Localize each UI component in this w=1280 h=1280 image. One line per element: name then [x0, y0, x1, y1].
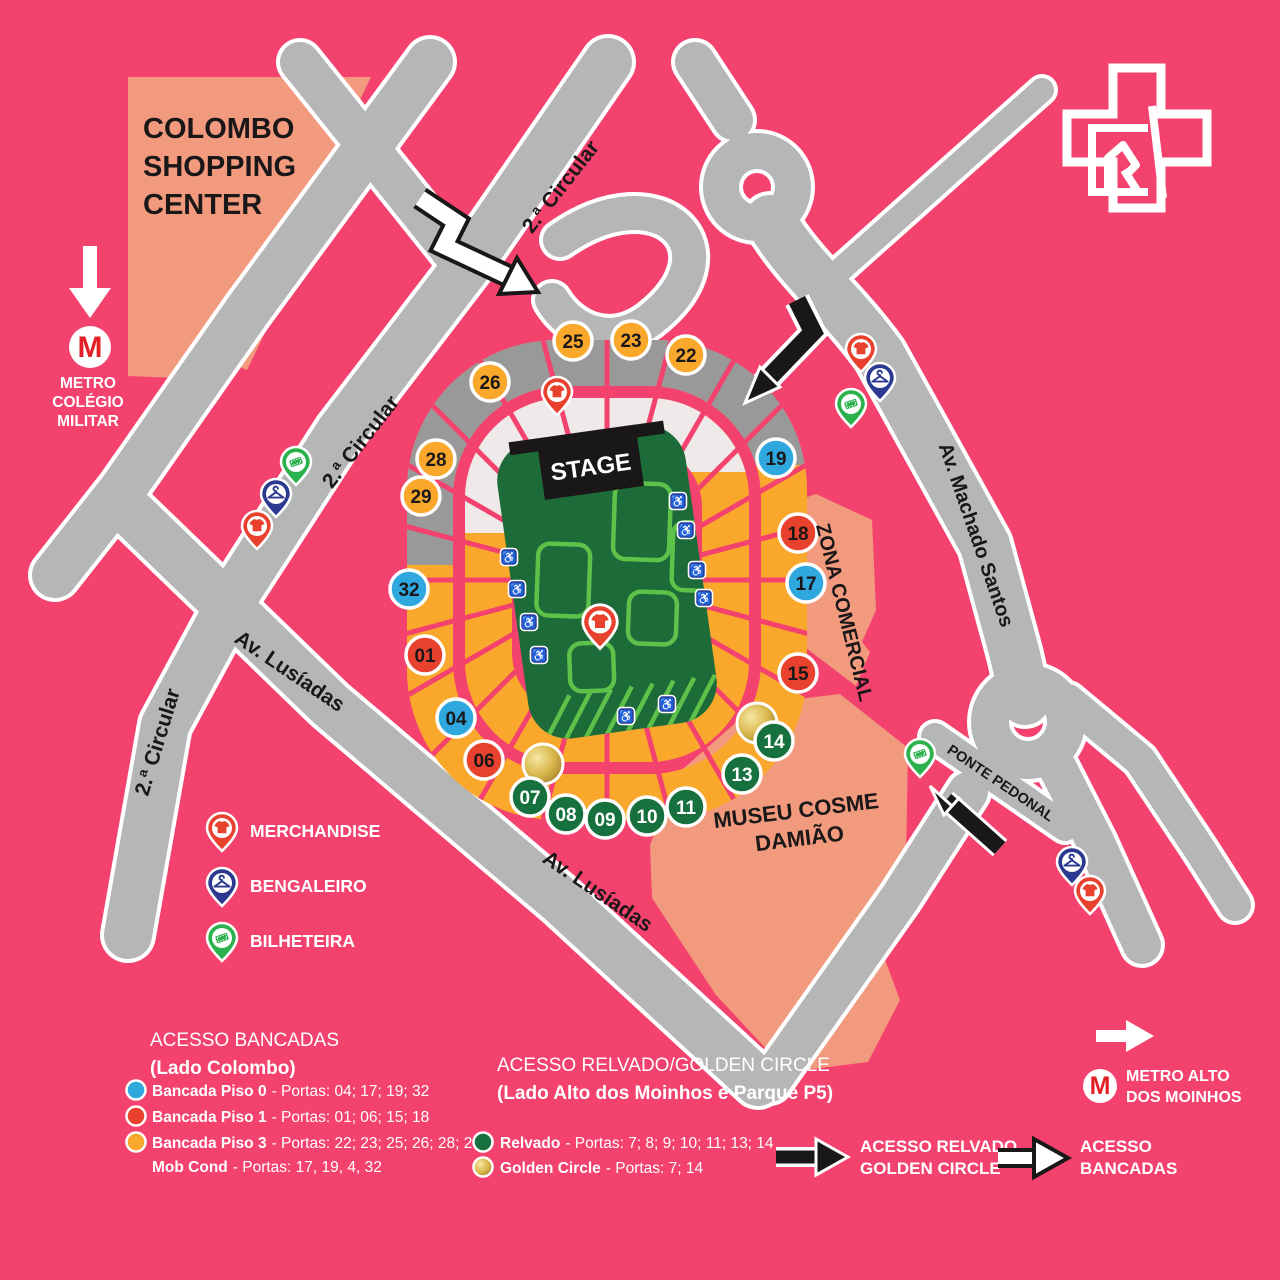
legend-row: Bancada Piso 3- Portas: 22; 23; 25; 26; … — [152, 1135, 481, 1152]
svg-text:DOS MOINHOS: DOS MOINHOS — [1126, 1089, 1242, 1106]
gate-15: 15 — [779, 654, 817, 692]
venue-map: STAGE ♿ ♿ ♿ ♿ ♿ ♿ ♿ ♿ ♿ ♿ 25 23 22 26 28… — [0, 0, 1280, 1280]
gate-11: 11 — [667, 788, 705, 826]
gate-26: 26 — [471, 363, 509, 401]
metro-m: M — [78, 331, 103, 364]
wheelchair-icon: ♿ — [509, 581, 526, 598]
wheelchair-icon: ♿ — [659, 696, 676, 713]
svg-text:♿: ♿ — [510, 583, 525, 597]
svg-text:ACESSO RELVADO: ACESSO RELVADO — [860, 1137, 1017, 1156]
svg-text:♿: ♿ — [619, 710, 634, 724]
svg-text:10: 10 — [636, 807, 657, 828]
wheelchair-icon: ♿ — [696, 590, 713, 607]
svg-text:22: 22 — [675, 346, 696, 367]
gate-22: 22 — [667, 336, 705, 374]
svg-text:29: 29 — [410, 487, 431, 508]
legend-row: Mob Cond- Portas: 17, 19, 4, 32 — [152, 1159, 382, 1176]
svg-text:METRO: METRO — [60, 375, 116, 392]
pin-legend: MERCHANDISE BENGALEIRO BILHETEIRA — [207, 813, 380, 961]
gate-01: 01 — [406, 636, 444, 674]
colombo-label: COLOMBO — [143, 113, 294, 145]
wheelchair-icon: ♿ — [501, 549, 518, 566]
svg-text:15: 15 — [787, 664, 809, 685]
colombo-label: CENTER — [143, 189, 262, 221]
svg-text:04: 04 — [445, 709, 467, 730]
wheelchair-icon: ♿ — [689, 562, 706, 579]
gate-19: 19 — [757, 439, 795, 477]
legend-bilheteira: BILHETEIRA — [250, 931, 355, 951]
svg-text:32: 32 — [398, 580, 419, 601]
gate-13: 13 — [723, 755, 761, 793]
acesso-bancadas-subtitle: (Lado Colombo) — [150, 1058, 296, 1079]
svg-text:GOLDEN CIRCLE: GOLDEN CIRCLE — [860, 1159, 1001, 1178]
gate-25: 25 — [554, 322, 592, 360]
gate-29: 29 — [402, 477, 440, 515]
svg-text:♿: ♿ — [671, 495, 686, 509]
legend-dot — [127, 1107, 146, 1126]
svg-text:18: 18 — [787, 524, 808, 545]
svg-text:26: 26 — [479, 373, 500, 394]
gate-10: 10 — [628, 797, 666, 835]
svg-text:♿: ♿ — [690, 564, 705, 578]
svg-text:ACESSO: ACESSO — [1080, 1137, 1152, 1156]
svg-text:COLÉGIO: COLÉGIO — [52, 394, 123, 411]
svg-text:13: 13 — [731, 765, 752, 786]
legend-row: Bancada Piso 0- Portas: 04; 17; 19; 32 — [152, 1083, 429, 1100]
gate-09: 09 — [586, 800, 624, 838]
legend-row: Relvado- Portas: 7; 8; 9; 10; 11; 13; 14 — [500, 1135, 774, 1152]
svg-text:23: 23 — [620, 331, 641, 352]
svg-text:14: 14 — [763, 732, 785, 753]
svg-text:BANCADAS: BANCADAS — [1080, 1159, 1177, 1178]
gate-23: 23 — [612, 321, 650, 359]
legend-dot — [127, 1133, 146, 1152]
wheelchair-icon: ♿ — [531, 647, 548, 664]
gate-17: 17 — [787, 564, 825, 602]
legend-dot — [127, 1081, 146, 1100]
svg-text:25: 25 — [562, 332, 584, 353]
gate-28: 28 — [417, 440, 455, 478]
svg-text:♿: ♿ — [697, 592, 712, 606]
legend-merchandise: MERCHANDISE — [250, 821, 380, 841]
svg-text:METRO ALTO: METRO ALTO — [1126, 1068, 1230, 1085]
svg-text:28: 28 — [425, 450, 446, 471]
legend-dot — [474, 1158, 493, 1177]
svg-text:17: 17 — [795, 574, 816, 595]
legend-dot — [474, 1133, 493, 1152]
svg-text:08: 08 — [555, 805, 576, 826]
svg-text:07: 07 — [519, 788, 540, 809]
svg-text:♿: ♿ — [532, 649, 547, 663]
wheelchair-icon: ♿ — [678, 522, 695, 539]
svg-text:11: 11 — [676, 798, 697, 819]
legend-row: Bancada Piso 1- Portas: 01; 06; 15; 18 — [152, 1109, 429, 1126]
legend-bengaleiro: BENGALEIRO — [250, 876, 367, 896]
gate-07: 07 — [511, 778, 549, 816]
wheelchair-icon: ♿ — [670, 493, 687, 510]
gate-14: 14 — [755, 722, 793, 760]
gate-18: 18 — [779, 514, 817, 552]
acesso-relvado-title: ACESSO RELVADO/GOLDEN CIRCLE — [497, 1055, 830, 1076]
gate-08: 08 — [547, 795, 585, 833]
svg-text:♿: ♿ — [502, 551, 517, 565]
gate-06: 06 — [465, 741, 503, 779]
metro-m: M — [1090, 1072, 1111, 1100]
svg-text:♿: ♿ — [660, 698, 675, 712]
svg-text:♿: ♿ — [679, 524, 694, 538]
map-canvas: STAGE ♿ ♿ ♿ ♿ ♿ ♿ ♿ ♿ ♿ ♿ 25 23 22 26 28… — [0, 0, 1280, 1280]
svg-text:09: 09 — [594, 810, 615, 831]
wheelchair-icon: ♿ — [618, 708, 635, 725]
gate-32: 32 — [390, 570, 428, 608]
svg-text:♿: ♿ — [522, 616, 537, 630]
acesso-bancadas-title: ACESSO BANCADAS — [150, 1030, 339, 1051]
svg-text:06: 06 — [473, 751, 494, 772]
svg-text:19: 19 — [765, 449, 786, 470]
svg-text:MILITAR: MILITAR — [57, 413, 119, 430]
acesso-relvado-subtitle: (Lado Alto dos Moinhos e Parque P5) — [497, 1083, 833, 1104]
gate-04: 04 — [437, 699, 475, 737]
svg-text:01: 01 — [414, 646, 436, 667]
colombo-label: SHOPPING — [143, 151, 296, 183]
wheelchair-icon: ♿ — [521, 614, 538, 631]
